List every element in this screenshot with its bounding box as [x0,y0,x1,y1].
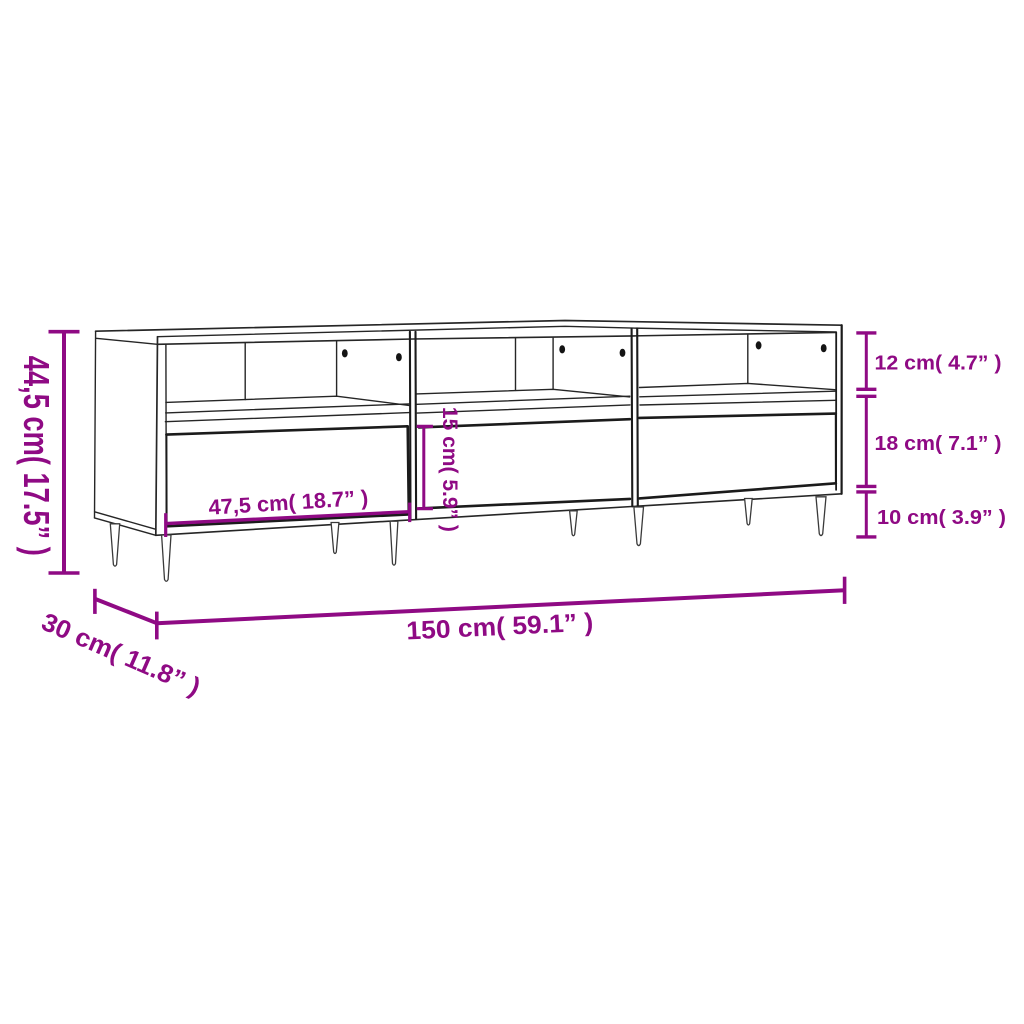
svg-text:12 cm( 4.7” ): 12 cm( 4.7” ) [875,352,1002,375]
svg-text:10 cm( 3.9” ): 10 cm( 3.9” ) [877,506,1006,529]
svg-text:15 cm( 5.9” ): 15 cm( 5.9” ) [438,407,462,532]
svg-text:44,5 cm( 17.5” ): 44,5 cm( 17.5” ) [16,356,57,556]
svg-text:18 cm( 7.1” ): 18 cm( 7.1” ) [875,432,1002,455]
